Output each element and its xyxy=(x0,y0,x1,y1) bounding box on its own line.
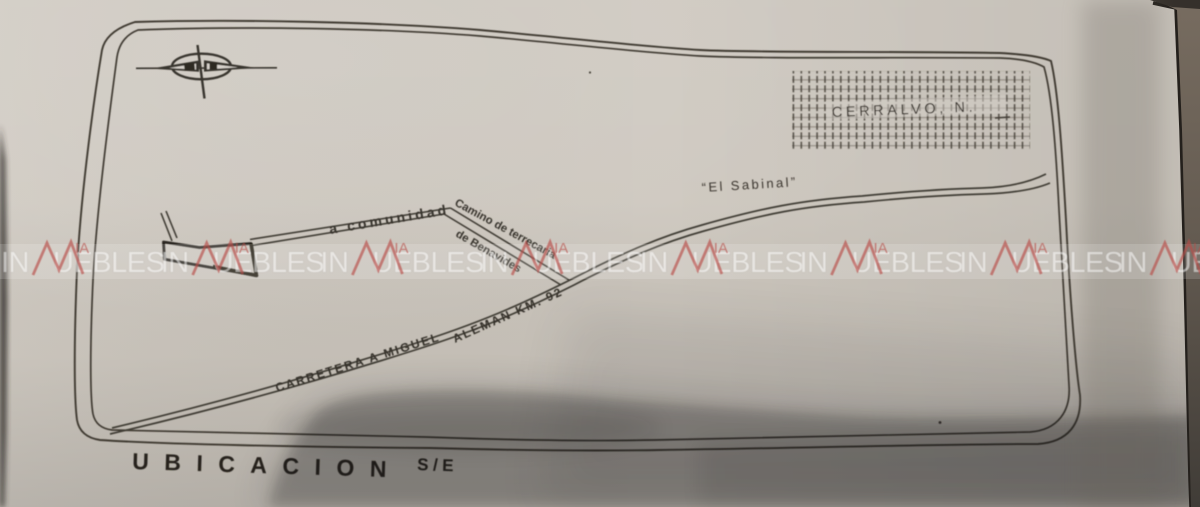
svg-text:IN: IN xyxy=(1,247,29,279)
svg-text:UEBLES: UEBLES xyxy=(692,247,804,279)
svg-text:UEBLES: UEBLES xyxy=(1011,247,1123,279)
svg-text:IN: IN xyxy=(320,247,348,279)
svg-text:IA: IA xyxy=(75,240,89,257)
svg-text:IN: IN xyxy=(959,247,987,279)
svg-text:UEBLES: UEBLES xyxy=(213,247,325,279)
svg-text:IN: IN xyxy=(480,247,508,279)
svg-text:UEBLES: UEBLES xyxy=(852,247,964,279)
svg-text:UEBLES: UEBLES xyxy=(53,247,165,279)
svg-text:IN: IN xyxy=(800,247,828,279)
svg-text:IA: IA xyxy=(394,240,408,257)
svg-text:UEBLES: UEBLES xyxy=(532,247,644,279)
svg-text:UEBLES: UEBLES xyxy=(372,247,484,279)
svg-text:IA: IA xyxy=(1033,240,1047,257)
svg-text:IN: IN xyxy=(640,247,668,279)
svg-text:IA: IA xyxy=(874,240,888,257)
svg-text:IN: IN xyxy=(1119,247,1147,279)
svg-text:IA: IA xyxy=(1193,240,1200,257)
svg-text:IA: IA xyxy=(554,240,568,257)
svg-text:IA: IA xyxy=(714,240,728,257)
svg-text:IA: IA xyxy=(235,240,249,257)
svg-text:IN: IN xyxy=(161,247,189,279)
